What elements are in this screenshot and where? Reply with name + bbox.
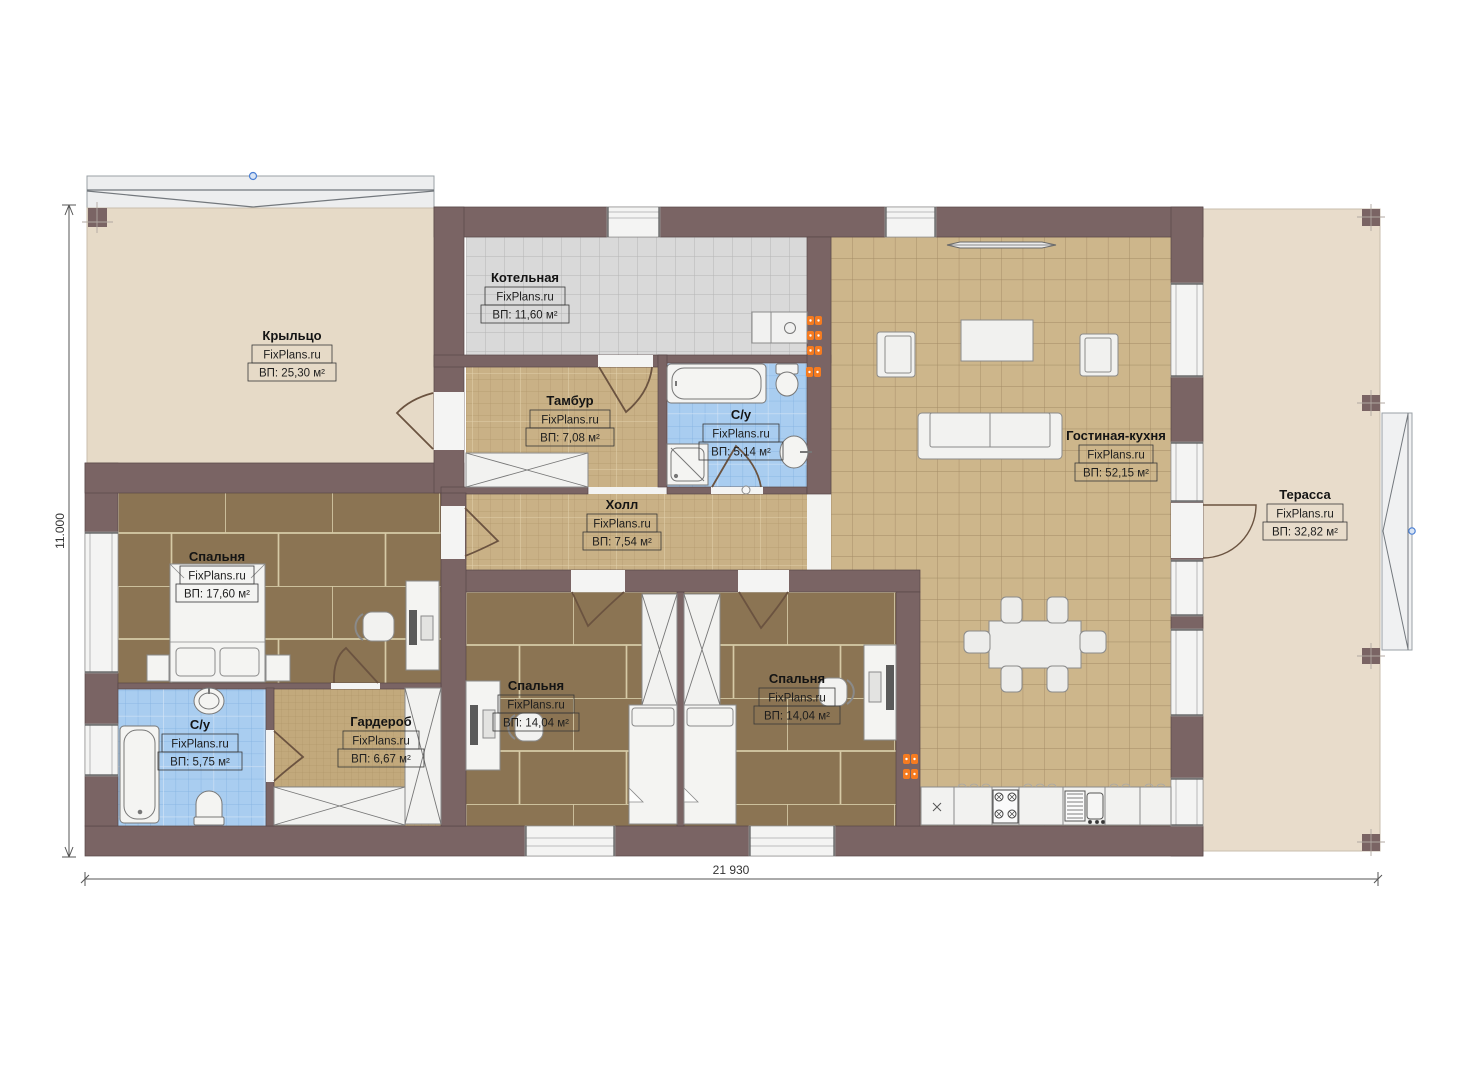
svg-text:ВП: 17,60 м²: ВП: 17,60 м² xyxy=(184,589,250,601)
svg-text:Холл: Холл xyxy=(606,497,639,512)
svg-text:Котельная: Котельная xyxy=(491,270,559,285)
svg-text:FixPlans.ru: FixPlans.ru xyxy=(171,739,229,751)
svg-text:FixPlans.ru: FixPlans.ru xyxy=(593,519,651,531)
svg-text:ВП: 5,14 м²: ВП: 5,14 м² xyxy=(711,447,771,459)
svg-text:ВП: 32,82 м²: ВП: 32,82 м² xyxy=(1272,527,1338,539)
svg-text:ВП: 14,04 м²: ВП: 14,04 м² xyxy=(764,711,830,723)
svg-text:ВП: 52,15 м²: ВП: 52,15 м² xyxy=(1083,468,1149,480)
svg-text:ВП: 6,67 м²: ВП: 6,67 м² xyxy=(351,754,411,766)
svg-text:ВП: 25,30 м²: ВП: 25,30 м² xyxy=(259,368,325,380)
svg-text:ВП: 14,04 м²: ВП: 14,04 м² xyxy=(503,718,569,730)
svg-text:ВП: 11,60 м²: ВП: 11,60 м² xyxy=(492,310,557,322)
svg-text:ВП: 5,75 м²: ВП: 5,75 м² xyxy=(170,757,230,769)
svg-text:С/у: С/у xyxy=(731,407,752,422)
svg-text:11.000: 11.000 xyxy=(53,513,67,549)
svg-text:FixPlans.ru: FixPlans.ru xyxy=(507,700,565,712)
svg-text:Терасса: Терасса xyxy=(1279,487,1331,502)
svg-text:Спальня: Спальня xyxy=(769,671,825,686)
svg-text:Гостиная-кухня: Гостиная-кухня xyxy=(1066,428,1166,443)
svg-text:Крыльцо: Крыльцо xyxy=(262,328,321,343)
svg-text:ВП: 7,08 м²: ВП: 7,08 м² xyxy=(540,433,600,445)
svg-text:ВП: 7,54 м²: ВП: 7,54 м² xyxy=(592,537,652,549)
svg-text:21 930: 21 930 xyxy=(713,863,750,877)
svg-text:FixPlans.ru: FixPlans.ru xyxy=(496,292,554,304)
svg-text:FixPlans.ru: FixPlans.ru xyxy=(1276,509,1334,521)
svg-text:FixPlans.ru: FixPlans.ru xyxy=(263,350,321,362)
svg-text:FixPlans.ru: FixPlans.ru xyxy=(1087,450,1145,462)
svg-text:С/у: С/у xyxy=(190,717,211,732)
svg-text:FixPlans.ru: FixPlans.ru xyxy=(712,429,770,441)
svg-text:FixPlans.ru: FixPlans.ru xyxy=(188,571,246,583)
svg-text:FixPlans.ru: FixPlans.ru xyxy=(768,693,826,705)
svg-text:Спальня: Спальня xyxy=(508,678,564,693)
svg-text:Тамбур: Тамбур xyxy=(546,393,593,408)
svg-text:FixPlans.ru: FixPlans.ru xyxy=(541,415,599,427)
svg-text:Спальня: Спальня xyxy=(189,549,245,564)
svg-text:FixPlans.ru: FixPlans.ru xyxy=(352,736,410,748)
svg-text:Гардероб: Гардероб xyxy=(350,714,411,729)
